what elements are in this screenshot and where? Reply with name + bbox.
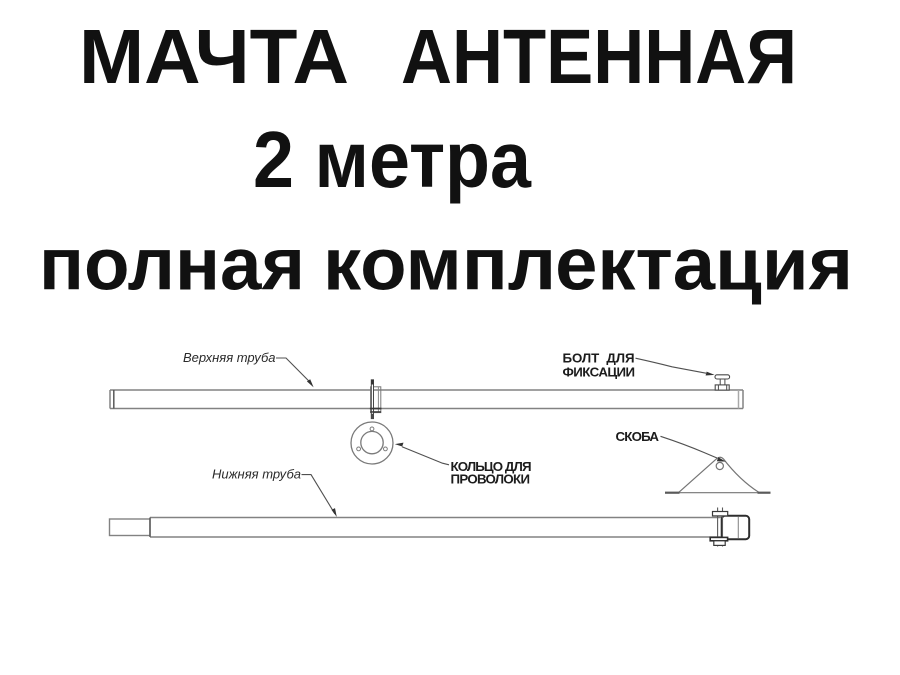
- svg-text:МАЧТА: МАЧТА: [79, 15, 349, 100]
- svg-text:комплектация: комплектация: [323, 222, 853, 305]
- svg-text:СКОБА: СКОБА: [616, 429, 660, 444]
- svg-text:2 метра: 2 метра: [253, 115, 531, 204]
- svg-text:ФИКСАЦИИ: ФИКСАЦИИ: [563, 365, 636, 380]
- svg-text:Нижняя труба: Нижняя труба: [212, 467, 301, 482]
- svg-text:Верхняя труба: Верхняя труба: [183, 350, 276, 365]
- svg-text:ПРОВОЛОКИ: ПРОВОЛОКИ: [451, 471, 531, 486]
- svg-text:АНТЕННАЯ: АНТЕННАЯ: [401, 15, 797, 100]
- svg-text:БОЛТ ДЛЯ: БОЛТ ДЛЯ: [563, 350, 635, 365]
- svg-text:полная: полная: [39, 222, 305, 305]
